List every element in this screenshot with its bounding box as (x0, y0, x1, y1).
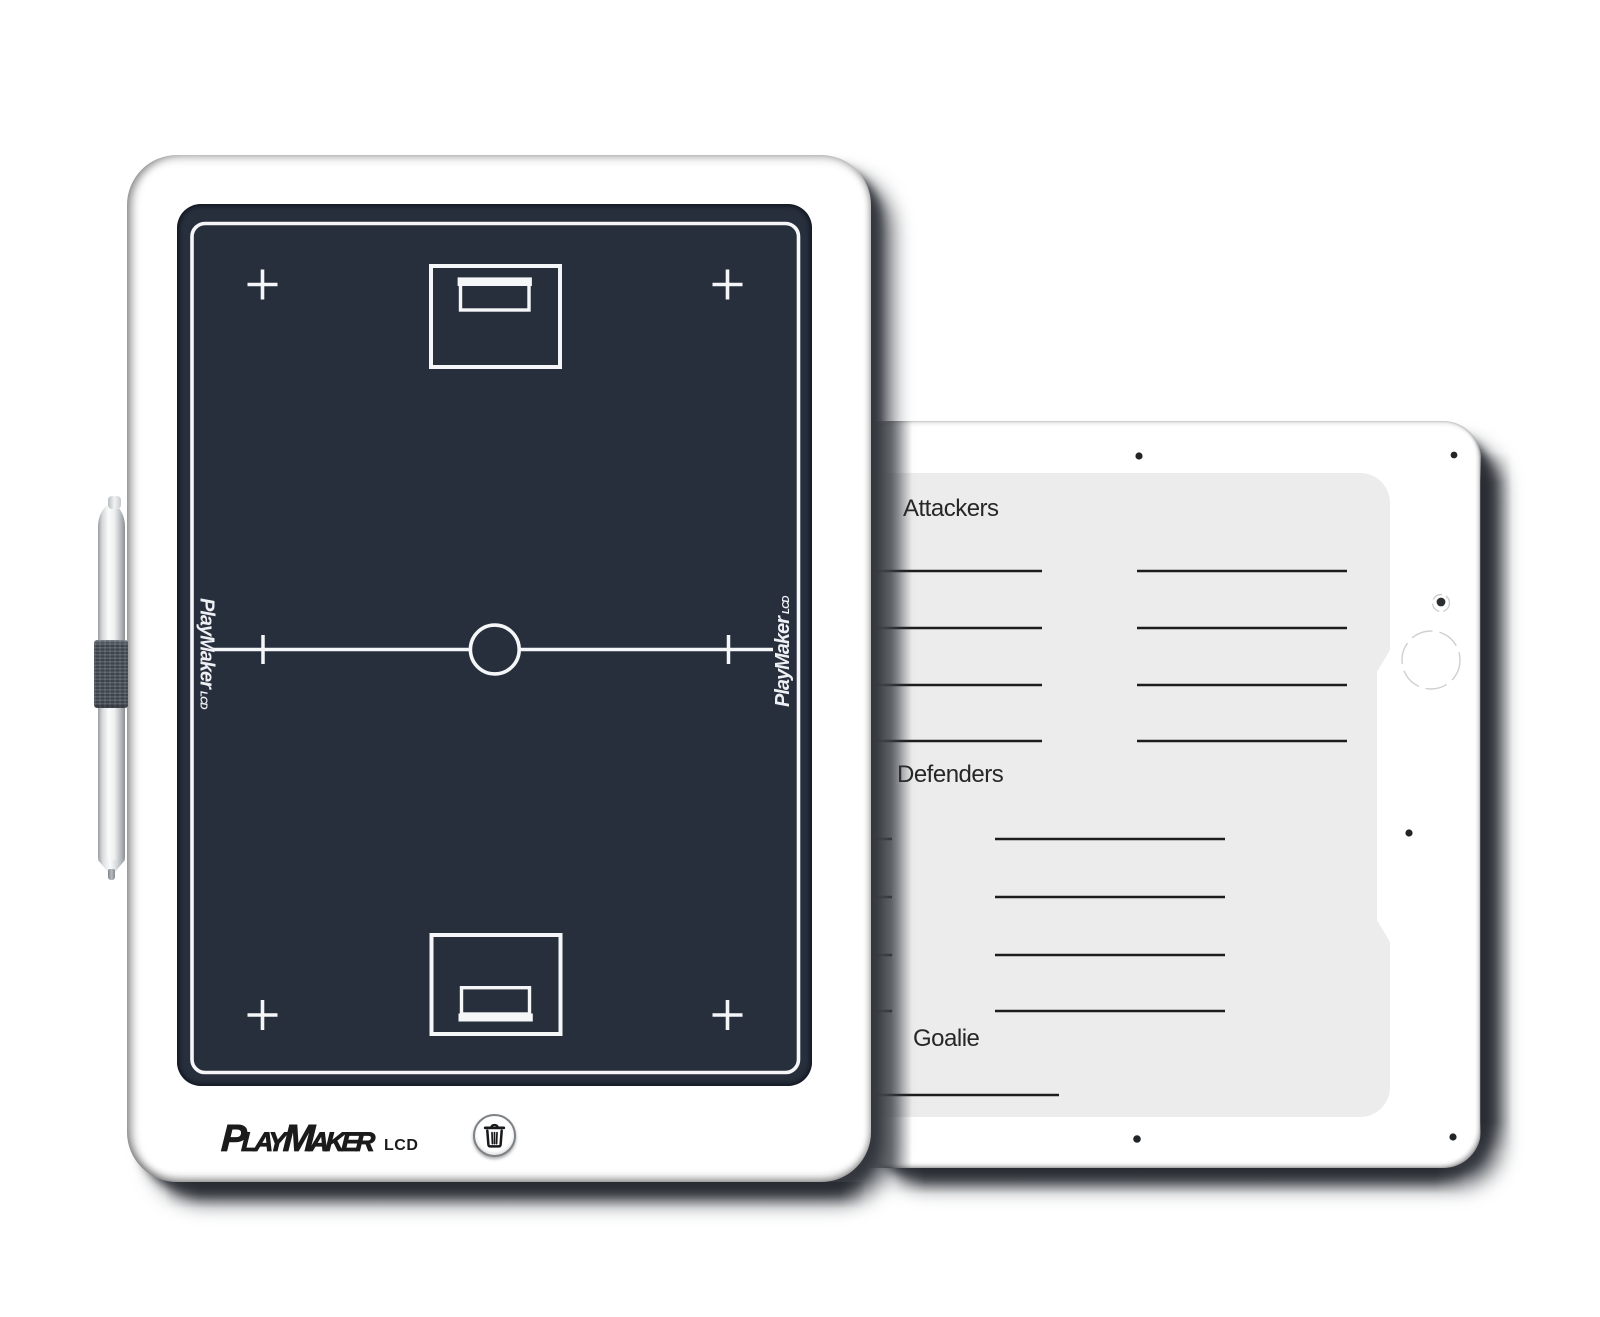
svg-text:Defenders: Defenders (897, 761, 1004, 788)
svg-text:PlayMakerLCD: PlayMakerLCD (196, 598, 218, 709)
svg-text:Goalie: Goalie (913, 1025, 980, 1052)
svg-text:Attackers: Attackers (903, 495, 999, 522)
svg-text:PLAYMAKER: PLAYMAKER (220, 1118, 377, 1160)
svg-text:PlayMakerLCD: PlayMakerLCD (772, 596, 794, 707)
svg-text:LCD: LCD (384, 1137, 418, 1154)
